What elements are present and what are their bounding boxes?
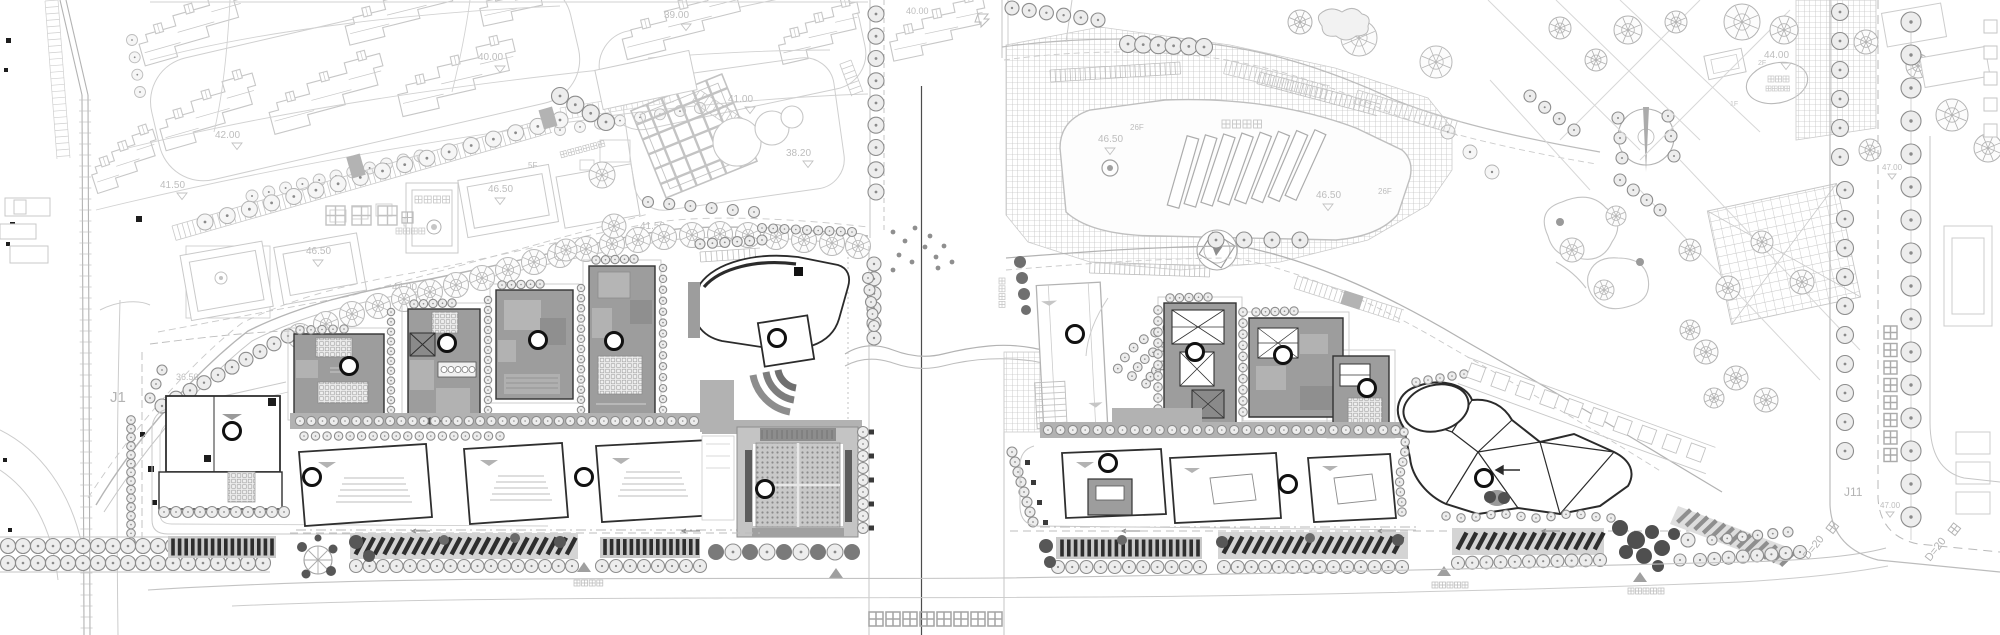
svg-text:J1: J1 (110, 389, 126, 406)
svg-text:38.20: 38.20 (786, 148, 811, 159)
svg-text:47.00: 47.00 (1880, 501, 1901, 510)
svg-text:2F: 2F (1758, 60, 1766, 67)
svg-text:47.00: 47.00 (1882, 163, 1903, 172)
svg-text:46.50: 46.50 (1316, 190, 1341, 201)
svg-text:5F: 5F (528, 161, 537, 170)
svg-text:26F: 26F (1378, 187, 1392, 196)
svg-text:41.00: 41.00 (728, 94, 753, 105)
svg-text:40.00: 40.00 (906, 6, 929, 16)
svg-text:44.00: 44.00 (1764, 50, 1789, 61)
svg-text:46.50: 46.50 (1098, 134, 1123, 145)
svg-text:J11: J11 (1844, 485, 1863, 499)
svg-text:46.50: 46.50 (306, 246, 331, 257)
svg-text:46.50: 46.50 (488, 184, 513, 195)
svg-text:41.50: 41.50 (160, 180, 185, 191)
svg-text:39.00: 39.00 (664, 10, 689, 21)
svg-text:42.00: 42.00 (215, 130, 240, 141)
svg-text:40.00: 40.00 (478, 52, 503, 63)
svg-text:26F: 26F (1130, 123, 1144, 132)
